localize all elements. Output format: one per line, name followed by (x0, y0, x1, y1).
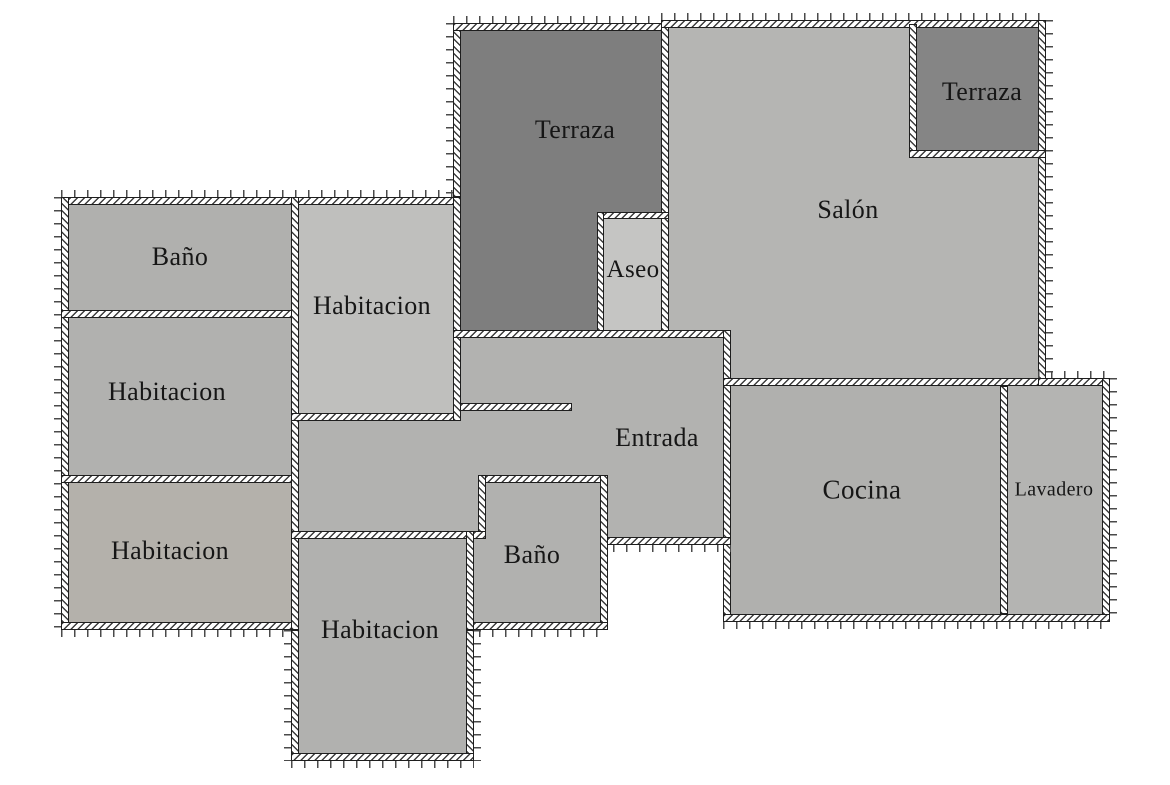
wall-segment (909, 150, 1046, 158)
wall-ticks (661, 13, 1046, 20)
floor-plan: TerrazaSalónTerrazaAseoEntradaBañoBañoHa… (0, 0, 1170, 785)
room-salon-fill (729, 328, 1040, 380)
wall-segment (1038, 378, 1110, 386)
room-cocina-label: Cocina (823, 475, 902, 506)
wall-ticks (1110, 378, 1117, 622)
wall-ticks (291, 761, 474, 768)
wall-ticks (453, 16, 669, 23)
wall-segment (600, 475, 608, 630)
wall-ticks (61, 190, 461, 197)
wall-segment (1038, 20, 1046, 386)
room-habitacion-inferior-label: Habitacion (321, 615, 439, 645)
wall-segment (1102, 378, 1110, 622)
wall-segment (909, 24, 917, 157)
wall-segment (466, 630, 474, 761)
wall-segment (597, 212, 669, 219)
room-habitacion-izq-baja-label: Habitacion (111, 536, 229, 566)
wall-ticks (1038, 371, 1110, 378)
room-entrada-fill (297, 419, 476, 533)
wall-segment (453, 197, 461, 421)
wall-ticks (446, 23, 453, 197)
wall-segment (466, 622, 608, 630)
wall-segment (466, 531, 474, 630)
room-terraza-tr-label: Terraza (942, 77, 1022, 107)
wall-segment (61, 197, 69, 630)
wall-segment (61, 197, 461, 205)
wall-segment (453, 23, 669, 31)
wall-ticks (284, 630, 291, 761)
wall-segment (453, 23, 461, 197)
wall-ticks (54, 197, 61, 630)
wall-segment (291, 531, 474, 539)
room-bano-tl-label: Baño (152, 242, 208, 272)
wall-segment (1000, 386, 1008, 614)
room-bano-centro-label: Baño (504, 540, 560, 570)
wall-segment (661, 20, 1046, 28)
wall-ticks (600, 545, 731, 552)
wall-ticks (723, 622, 1110, 629)
wall-segment (61, 310, 299, 318)
wall-segment (478, 475, 608, 483)
wall-ticks (61, 630, 299, 637)
room-habitacion-izq-media-label: Habitacion (108, 377, 226, 407)
wall-segment (453, 330, 731, 338)
wall-segment (478, 475, 486, 539)
wall-segment (661, 23, 669, 338)
wall-segment (291, 753, 474, 761)
wall-segment (61, 475, 299, 483)
wall-segment (597, 212, 604, 338)
wall-ticks (466, 630, 608, 637)
room-lavadero-label: Lavadero (1015, 479, 1094, 502)
room-habitacion-inferior-fill (297, 537, 468, 755)
room-entrada-label: Entrada (615, 423, 699, 453)
wall-segment (600, 537, 731, 545)
room-habitacion-central-label: Habitacion (313, 291, 431, 321)
wall-segment (723, 330, 731, 622)
wall-ticks (474, 630, 481, 761)
wall-segment (291, 630, 299, 761)
room-terraza-main-label: Terraza (535, 115, 615, 145)
wall-segment (61, 622, 299, 630)
wall-ticks (1046, 20, 1053, 386)
room-salon-label: Salón (817, 195, 878, 225)
wall-segment (453, 403, 572, 411)
room-aseo-label: Aseo (607, 256, 660, 284)
wall-segment (723, 378, 1046, 386)
room-bano-centro-fill (484, 481, 602, 533)
wall-segment (291, 413, 461, 421)
wall-segment (723, 614, 1110, 622)
